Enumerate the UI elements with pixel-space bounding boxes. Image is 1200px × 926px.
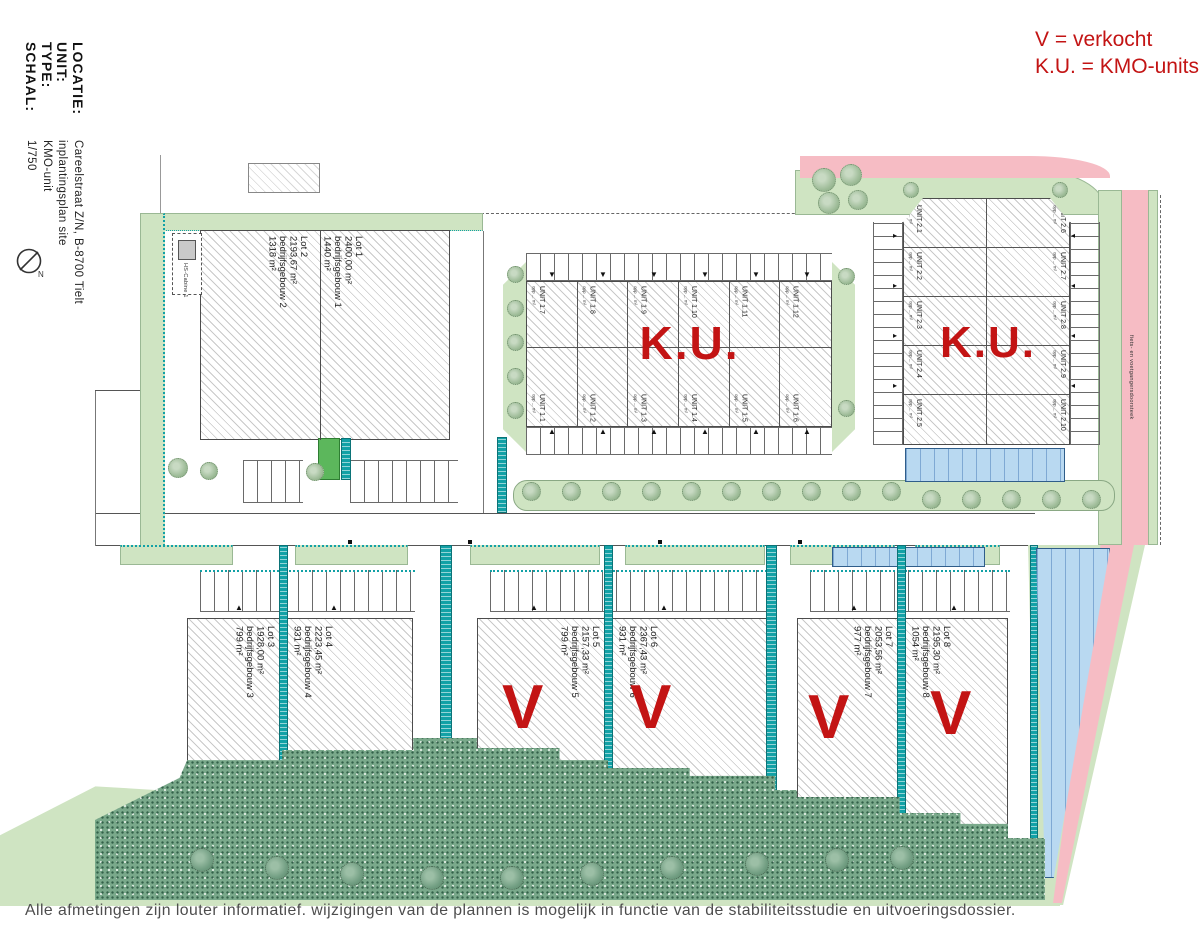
tree-icon bbox=[745, 852, 769, 876]
north-arrow-icon: N bbox=[14, 246, 46, 280]
tree-icon bbox=[200, 462, 218, 480]
tree-icon bbox=[580, 862, 604, 886]
sold-mark-lot7: V bbox=[808, 688, 849, 748]
unit-cell: UNIT 1.8opp ... m² bbox=[578, 282, 629, 348]
lot-area: 2223,45 m² bbox=[312, 626, 323, 698]
unit-area: opp ... m² bbox=[783, 286, 791, 318]
tree-icon bbox=[1042, 490, 1061, 509]
unit-label: UNIT 1.5opp ... m² bbox=[733, 394, 748, 422]
lot-footprint: 931 m² bbox=[291, 626, 302, 698]
unit-label: UNIT 2.3opp ... m² bbox=[907, 301, 922, 329]
tree-icon bbox=[962, 490, 981, 509]
ku-mark-1: K.U. bbox=[632, 316, 747, 370]
loading-dock-icon: ▼ bbox=[548, 271, 556, 279]
green-wing bbox=[503, 262, 526, 452]
tree-icon bbox=[825, 848, 849, 872]
unit-area: opp ... m² bbox=[530, 394, 538, 422]
unit-label: UNIT 2.2opp ... m² bbox=[907, 252, 922, 280]
unit-name: UNIT 1.2 bbox=[588, 394, 596, 422]
unit-cell: UNIT 2.1opp ... m² bbox=[904, 199, 987, 248]
unit-area: opp ... m² bbox=[733, 286, 741, 317]
unit-cell: UNIT 1.6opp ... m² bbox=[780, 348, 831, 426]
unit-name: UNIT 2.4 bbox=[915, 350, 923, 378]
sold-mark-lot6: V bbox=[630, 678, 671, 738]
road-edge bbox=[95, 513, 1035, 514]
unit-cell: UNIT 2.6opp ... m² bbox=[987, 199, 1070, 248]
title-schaal-value: 1/750 bbox=[25, 140, 37, 171]
disclaimer-text: Alle afmetingen zijn louter informatief.… bbox=[25, 902, 1016, 920]
unit-area: opp ... m² bbox=[1051, 399, 1059, 431]
lot-footprint: 977 m² bbox=[851, 626, 862, 698]
unit-label: UNIT 1.1opp ... m² bbox=[530, 394, 545, 422]
tree-icon bbox=[168, 458, 188, 478]
lot-footprint: 1440 m² bbox=[321, 236, 332, 308]
lot-building: bedrijfsgebouw 1 bbox=[332, 236, 343, 308]
unit-label: UNIT 2.8opp ... m² bbox=[1051, 301, 1066, 329]
lot-building: bedrijfsgebouw 5 bbox=[569, 626, 580, 698]
unit-label: UNIT 1.6opp ... m² bbox=[783, 394, 798, 422]
hs-cabine-label: HS-Cabine 1 bbox=[182, 263, 188, 298]
unit-name: UNIT 1.9 bbox=[639, 286, 647, 314]
loading-dock-icon: ▲ bbox=[850, 604, 858, 612]
lot-area: 2157,33 m² bbox=[579, 626, 590, 698]
unit-cell: UNIT 2.10opp ... m² bbox=[987, 395, 1070, 444]
tree-icon bbox=[722, 482, 741, 501]
tree-icon bbox=[660, 856, 684, 880]
cycle-path bbox=[1122, 190, 1148, 545]
unit-name: UNIT 2.3 bbox=[915, 301, 923, 329]
lot-area: 2053,56 m² bbox=[872, 626, 883, 698]
unit-name: UNIT 2.10 bbox=[1059, 399, 1067, 431]
loading-dock-icon: ▸ bbox=[893, 332, 897, 340]
title-unit-label: UNIT: bbox=[54, 42, 70, 83]
lot-building: bedrijfsgebouw 2 bbox=[277, 236, 288, 308]
unit-cell: UNIT 1.2opp ... m² bbox=[578, 348, 629, 426]
tree-icon bbox=[602, 482, 621, 501]
lot-2-label: Lot 2 2193,67 m² bedrijfsgebouw 2 1318 m… bbox=[266, 236, 308, 308]
green-strip bbox=[120, 545, 233, 565]
loading-dock-icon: ◂ bbox=[1071, 332, 1075, 340]
tree-icon bbox=[522, 482, 541, 501]
lot-footprint: 931 m² bbox=[616, 626, 627, 698]
unit-label: UNIT 1.2opp ... m² bbox=[581, 394, 596, 422]
lot-footprint: 1054 m² bbox=[909, 626, 920, 698]
lot-area: 1928,00 m² bbox=[254, 626, 265, 698]
sold-mark-lot8: V bbox=[930, 684, 971, 744]
lot-name: Lot 5 bbox=[590, 626, 601, 698]
tree-icon bbox=[842, 482, 861, 501]
lot-area: 2400,00 m² bbox=[342, 236, 353, 308]
tree-icon bbox=[762, 482, 781, 501]
title-type-label: TYPE: bbox=[39, 42, 55, 88]
green-strip bbox=[295, 545, 408, 565]
tree-icon bbox=[507, 402, 524, 419]
loading-dock-icon: ▼ bbox=[650, 271, 658, 279]
hedge bbox=[497, 437, 507, 513]
lot-1-label: Lot 1 2400,00 m² bedrijfsgebouw 1 1440 m… bbox=[321, 236, 363, 308]
tree-icon bbox=[818, 192, 840, 214]
lot-7-label: Lot 7 2053,56 m² bedrijfsgebouw 7 977 m² bbox=[851, 626, 893, 698]
unit-cell: UNIT 1.1opp ... m² bbox=[527, 348, 578, 426]
legend: V = verkocht K.U. = KMO-units bbox=[1035, 26, 1199, 80]
unit-label: UNIT 1.4opp ... m² bbox=[682, 394, 697, 422]
path-label: fiets- en voetgangersdoorsteek bbox=[1128, 335, 1134, 420]
water-basin bbox=[905, 448, 1065, 482]
tree-icon bbox=[903, 182, 919, 198]
tree-icon bbox=[507, 300, 524, 317]
tree-icon bbox=[306, 463, 324, 481]
unit-name: UNIT 1.10 bbox=[690, 286, 698, 318]
tree-icon bbox=[848, 190, 868, 210]
parking-row bbox=[810, 570, 1010, 612]
tree-icon bbox=[682, 482, 701, 501]
marker-square bbox=[348, 540, 352, 544]
marker-square bbox=[798, 540, 802, 544]
tree-icon bbox=[840, 164, 862, 186]
tree-icon bbox=[507, 266, 524, 283]
lot-area: 2193,67 m² bbox=[287, 236, 298, 308]
lot-footprint: 799 m² bbox=[233, 626, 244, 698]
unit-area: opp ... m² bbox=[581, 394, 589, 422]
tree-icon bbox=[812, 168, 836, 192]
parking-row bbox=[350, 460, 458, 503]
unit-label: UNIT 1.3opp ... m² bbox=[631, 394, 646, 422]
unit-name: UNIT 2.8 bbox=[1059, 301, 1067, 329]
lot-name: Lot 3 bbox=[265, 626, 276, 698]
unit-area: opp ... m² bbox=[682, 394, 690, 422]
lot-building: bedrijfsgebouw 4 bbox=[302, 626, 313, 698]
loading-dock-icon: ▲ bbox=[548, 428, 556, 436]
loading-dock-icon: ▼ bbox=[701, 271, 709, 279]
unit-area: opp ... m² bbox=[1051, 350, 1059, 378]
loading-dock-icon: ▲ bbox=[701, 428, 709, 436]
water-basin bbox=[832, 547, 985, 567]
unit-area: opp ... m² bbox=[907, 252, 915, 280]
road-edge bbox=[483, 231, 484, 513]
site-plan-page: LOCATIE: Careelstraat Z/N, B-8700 Tielt … bbox=[0, 0, 1200, 926]
green-strip bbox=[470, 545, 600, 565]
unit-cell: UNIT 1.12opp ... m² bbox=[780, 282, 831, 348]
unit-area: opp ... m² bbox=[1051, 301, 1059, 329]
unit-label: UNIT 1.7opp ... m² bbox=[530, 286, 545, 314]
loading-dock-icon: ▼ bbox=[599, 271, 607, 279]
loading-dock-icon: ▲ bbox=[599, 428, 607, 436]
tree-icon bbox=[1052, 182, 1068, 198]
lot-building: bedrijfsgebouw 8 bbox=[920, 626, 931, 698]
loading-dock-icon: ◂ bbox=[1071, 382, 1075, 390]
tree-icon bbox=[922, 490, 941, 509]
unit-name: UNIT 2.2 bbox=[915, 252, 923, 280]
tree-icon bbox=[420, 866, 444, 890]
loading-dock-icon: ▼ bbox=[803, 271, 811, 279]
unit-name: UNIT 1.12 bbox=[791, 286, 799, 318]
title-locatie-label: LOCATIE: bbox=[70, 42, 86, 115]
unit-name: UNIT 1.4 bbox=[690, 394, 698, 422]
road-edge bbox=[95, 390, 96, 546]
unit-name: UNIT 1.7 bbox=[538, 286, 546, 314]
green-wing bbox=[832, 262, 855, 452]
legend-units: K.U. = KMO-units bbox=[1035, 53, 1199, 80]
tree-icon bbox=[265, 856, 289, 880]
unit-label: UNIT 1.9opp ... m² bbox=[631, 286, 646, 314]
green-strip bbox=[1148, 190, 1158, 545]
unit-area: opp ... m² bbox=[907, 301, 915, 329]
tree-icon bbox=[500, 866, 524, 890]
unit-label: UNIT 2.5opp ... m² bbox=[907, 399, 922, 427]
lot-building: bedrijfsgebouw 3 bbox=[244, 626, 255, 698]
tree-icon bbox=[802, 482, 821, 501]
loading-dock-icon: ▲ bbox=[530, 604, 538, 612]
tree-icon bbox=[1082, 490, 1101, 509]
tree-icon bbox=[562, 482, 581, 501]
road-edge bbox=[160, 155, 161, 213]
title-type-value: KMO-unit bbox=[41, 140, 53, 192]
parking-row bbox=[526, 427, 832, 455]
parking-row bbox=[526, 253, 832, 281]
parking-row bbox=[243, 460, 303, 503]
unit-area: opp ... m² bbox=[631, 394, 639, 422]
tree-icon bbox=[882, 482, 901, 501]
unit-name: UNIT 1.8 bbox=[588, 286, 596, 314]
loading-dock-icon: ▼ bbox=[752, 271, 760, 279]
loading-dock-icon: ▸ bbox=[893, 282, 897, 290]
unit-label: UNIT 1.11opp ... m² bbox=[733, 286, 748, 317]
unit-area: opp ... m² bbox=[733, 394, 741, 422]
loading-dock-icon: ▲ bbox=[650, 428, 658, 436]
loading-dock-icon: ▲ bbox=[330, 604, 338, 612]
title-unit-value: inplantingsplan site bbox=[56, 140, 68, 246]
unit-area: opp ... m² bbox=[1051, 252, 1059, 280]
tree-icon bbox=[190, 848, 214, 872]
lot-name: Lot 2 bbox=[298, 236, 309, 308]
lot-building: bedrijfsgebouw 7 bbox=[862, 626, 873, 698]
unit-name: UNIT 1.6 bbox=[791, 394, 799, 422]
tree-icon bbox=[507, 368, 524, 385]
unit-cell: UNIT 2.7opp ... m² bbox=[987, 248, 1070, 297]
parking-row bbox=[873, 222, 903, 445]
parking-row bbox=[200, 570, 415, 612]
unit-label: UNIT 2.9opp ... m² bbox=[1051, 350, 1066, 378]
lot-name: Lot 1 bbox=[353, 236, 364, 308]
unit-area: opp ... m² bbox=[530, 286, 538, 314]
unit-label: UNIT 1.12opp ... m² bbox=[783, 286, 798, 318]
tree-icon bbox=[890, 846, 914, 870]
lot-4-label: Lot 4 2223,45 m² bedrijfsgebouw 4 931 m² bbox=[291, 626, 333, 698]
loading-dock-icon: ▲ bbox=[235, 604, 243, 612]
tree-icon bbox=[507, 334, 524, 351]
unit-area: opp ... m² bbox=[907, 399, 915, 427]
lot-footprint: 1318 m² bbox=[266, 236, 277, 308]
marker-square bbox=[468, 540, 472, 544]
hs-cabine-unit bbox=[178, 240, 196, 260]
loading-dock-icon: ▸ bbox=[893, 232, 897, 240]
lot-name: Lot 7 bbox=[883, 626, 894, 698]
lot-name: Lot 4 bbox=[323, 626, 334, 698]
tree-icon bbox=[340, 862, 364, 886]
unit-label: UNIT 1.8opp ... m² bbox=[581, 286, 596, 314]
unit-label: UNIT 2.10opp ... m² bbox=[1051, 399, 1066, 431]
tree-icon bbox=[1002, 490, 1021, 509]
unit-name: UNIT 2.1 bbox=[915, 205, 923, 233]
existing-building bbox=[248, 163, 320, 193]
hedge bbox=[341, 438, 351, 480]
road-edge bbox=[95, 390, 140, 391]
unit-area: opp ... m² bbox=[581, 286, 589, 314]
loading-dock-icon: ▲ bbox=[660, 604, 668, 612]
tree-icon bbox=[838, 268, 855, 285]
lot-5-label: Lot 5 2157,33 m² bedrijfsgebouw 5 799 m² bbox=[558, 626, 600, 698]
unit-label: UNIT 1.10opp ... m² bbox=[682, 286, 697, 318]
sold-mark-lot5: V bbox=[502, 678, 543, 738]
green-strip bbox=[625, 545, 765, 565]
unit-area: opp ... m² bbox=[783, 394, 791, 422]
unit-name: UNIT 1.1 bbox=[538, 394, 546, 422]
loading-dock-icon: ◂ bbox=[1071, 282, 1075, 290]
unit-name: UNIT 1.3 bbox=[639, 394, 647, 422]
unit-cell: UNIT 2.2opp ... m² bbox=[904, 248, 987, 297]
unit-name: UNIT 1.5 bbox=[740, 394, 748, 422]
ku-mark-2: K.U. bbox=[928, 318, 1048, 368]
hedge-aisle bbox=[897, 545, 906, 835]
unit-cell: UNIT 2.5opp ... m² bbox=[904, 395, 987, 444]
unit-name: UNIT 2.7 bbox=[1059, 252, 1067, 280]
unit-label: UNIT 2.4opp ... m² bbox=[907, 350, 922, 378]
loading-dock-icon: ◂ bbox=[1071, 232, 1075, 240]
title-schaal-label: SCHAAL: bbox=[23, 42, 39, 112]
green-strip bbox=[163, 213, 483, 231]
green-strip bbox=[140, 213, 165, 558]
unit-area: opp ... m² bbox=[907, 350, 915, 378]
unit-area: opp ... m² bbox=[1051, 205, 1059, 233]
loading-dock-icon: ▸ bbox=[893, 382, 897, 390]
lot-footprint: 799 m² bbox=[558, 626, 569, 698]
loading-dock-icon: ▲ bbox=[950, 604, 958, 612]
title-locatie-value: Careelstraat Z/N, B-8700 Tielt bbox=[72, 140, 84, 304]
tree-icon bbox=[642, 482, 661, 501]
legend-sold: V = verkocht bbox=[1035, 26, 1199, 53]
unit-name: UNIT 2.9 bbox=[1059, 350, 1067, 378]
boundary-line bbox=[1160, 195, 1161, 545]
unit-cell: UNIT 1.7opp ... m² bbox=[527, 282, 578, 348]
unit-name: UNIT 2.5 bbox=[915, 399, 923, 427]
unit-area: opp ... m² bbox=[682, 286, 690, 318]
unit-label: UNIT 2.7opp ... m² bbox=[1051, 252, 1066, 280]
unit-name: UNIT 1.11 bbox=[740, 286, 748, 317]
loading-dock-icon: ▲ bbox=[803, 428, 811, 436]
marker-square bbox=[658, 540, 662, 544]
loading-dock-icon: ▲ bbox=[752, 428, 760, 436]
unit-area: opp ... m² bbox=[631, 286, 639, 314]
lot-3-label: Lot 3 1928,00 m² bedrijfsgebouw 3 799 m² bbox=[233, 626, 275, 698]
tree-icon bbox=[838, 400, 855, 417]
svg-text:N: N bbox=[38, 270, 44, 279]
